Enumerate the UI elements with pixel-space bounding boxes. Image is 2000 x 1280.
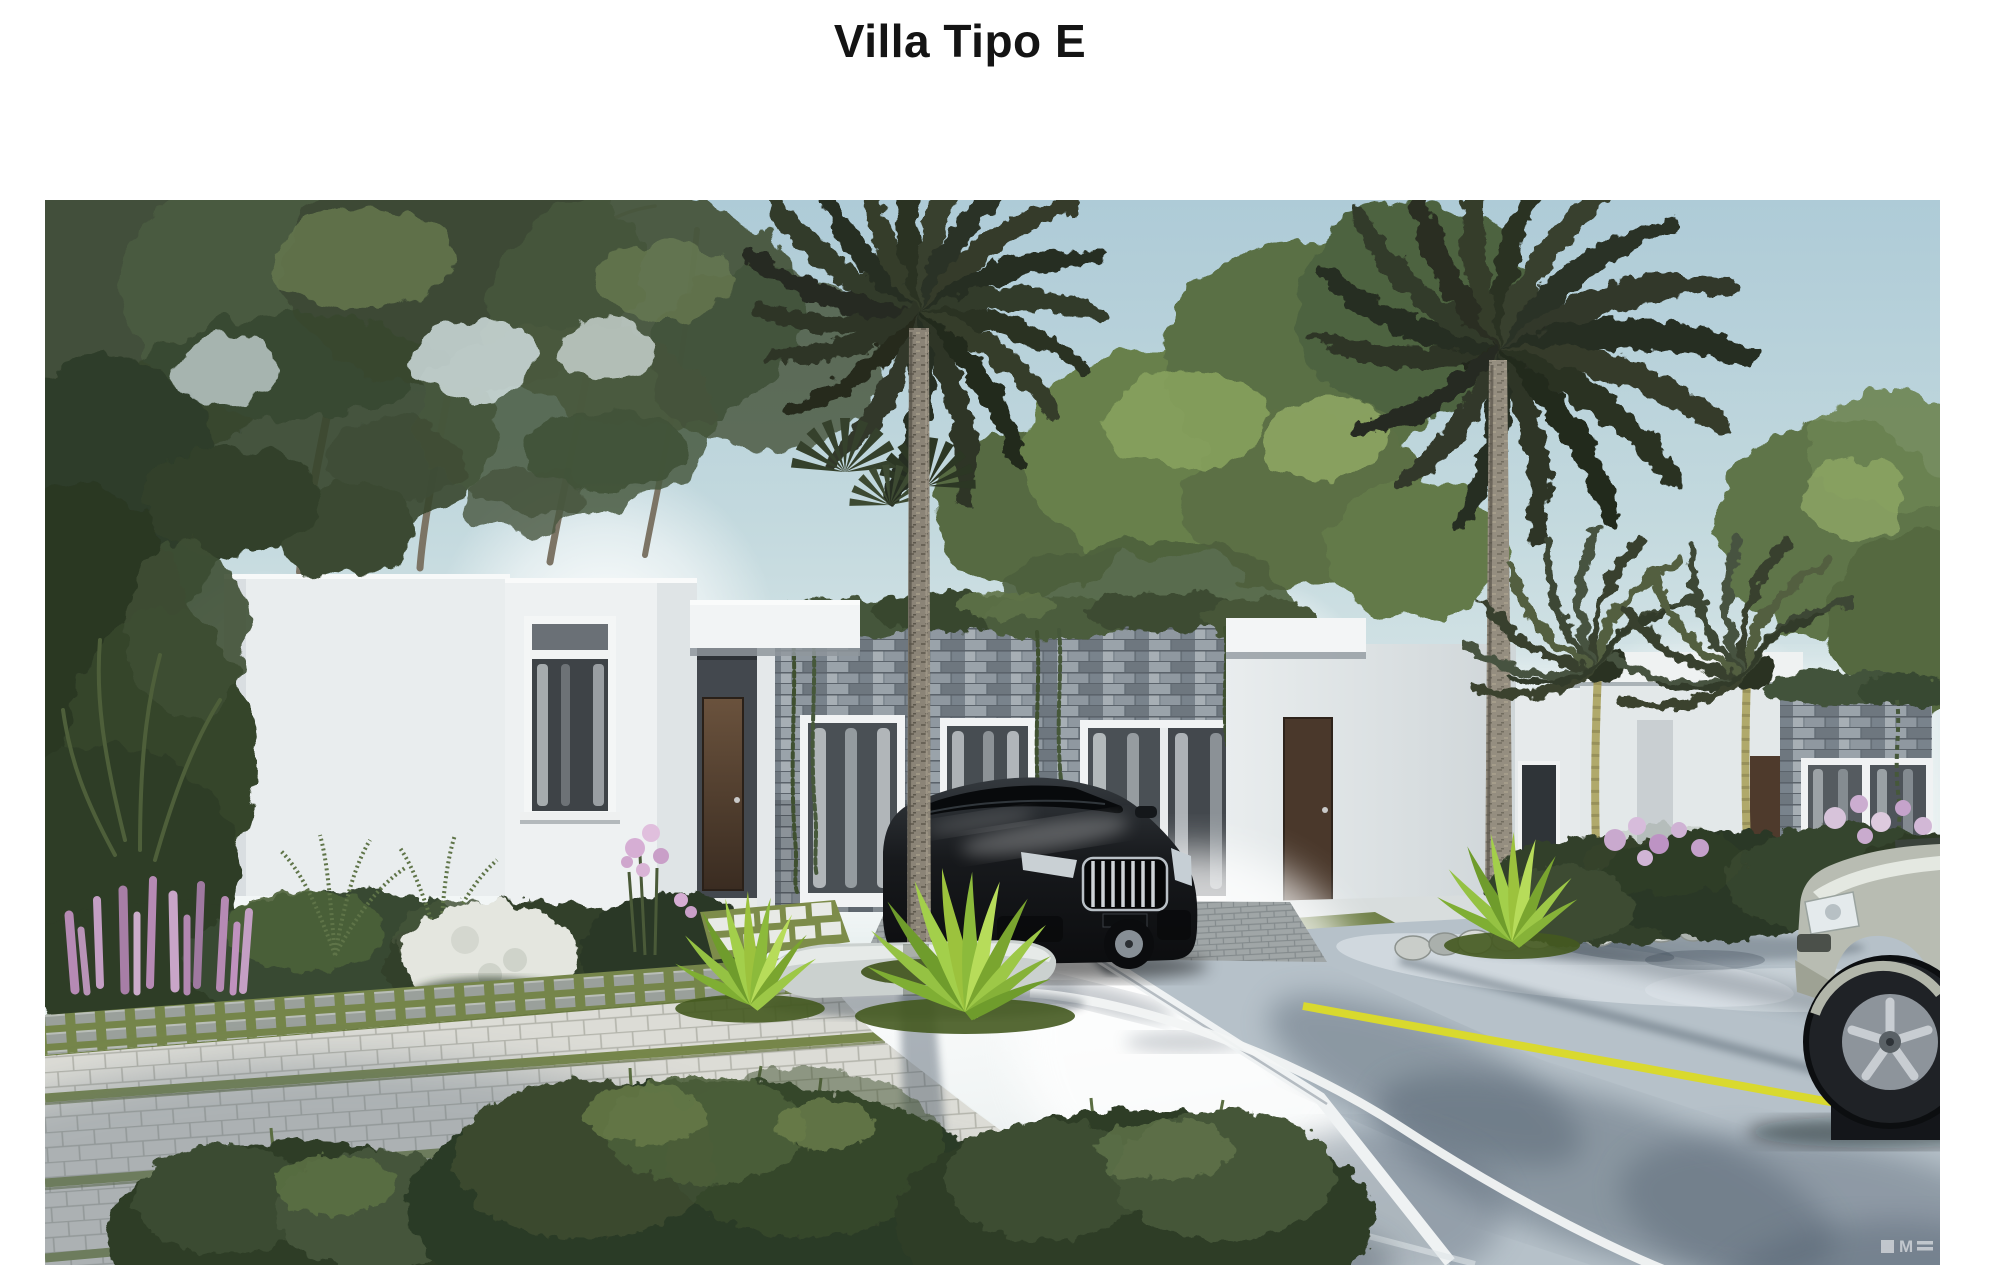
neighbor-small-window — [1522, 765, 1556, 851]
center-palm-trunk — [907, 328, 931, 968]
sedan-mirror — [1135, 806, 1157, 818]
villa-mid-wing — [505, 578, 697, 912]
suv-grille — [1797, 934, 1831, 952]
page-title: Villa Tipo E — [0, 14, 1920, 68]
mid-wing-window — [520, 616, 620, 824]
door-handle — [734, 797, 740, 803]
villa-rendering-figure: Architectural rendering of modern single… — [45, 200, 1940, 1265]
villa-left-wing — [224, 574, 510, 896]
suv-front-wheel — [1806, 958, 1940, 1126]
villa-fascia-left — [690, 600, 860, 656]
document-page: Villa Tipo E Architectural rendering of … — [0, 0, 2000, 1280]
entry-door — [703, 698, 743, 890]
watermark-text: M — [1899, 1237, 1913, 1256]
